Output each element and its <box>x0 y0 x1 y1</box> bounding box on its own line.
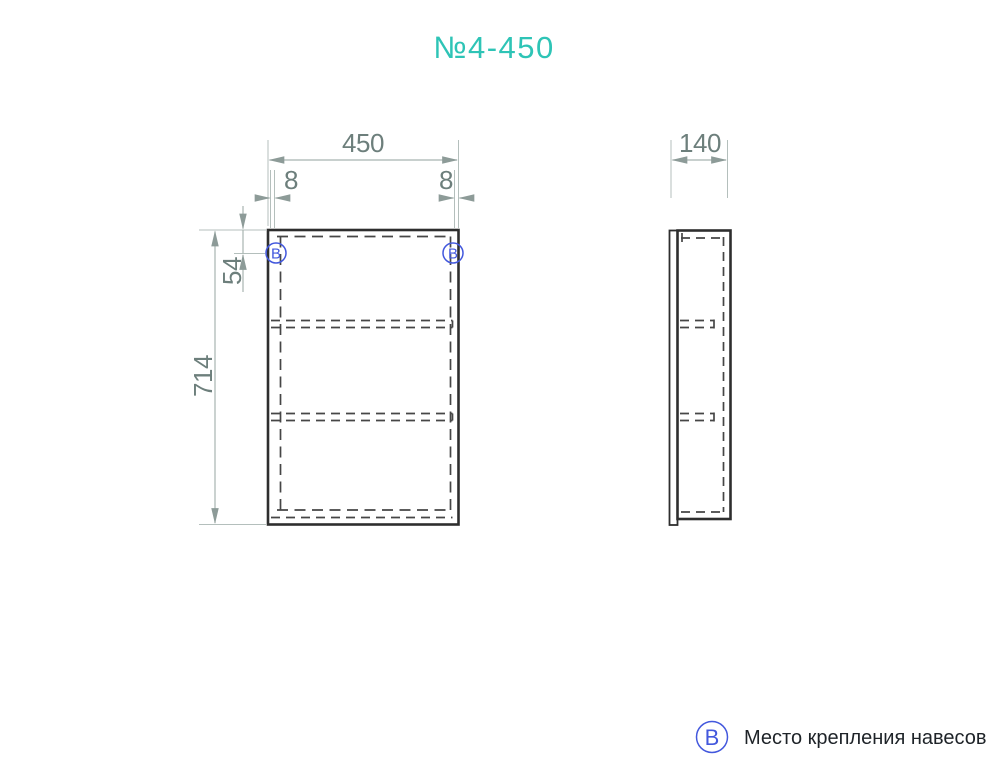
front-dimensions: 450 8 8 54 714 <box>188 128 472 525</box>
side-view <box>670 231 731 526</box>
drawing-title: №4-450 <box>433 30 555 65</box>
dim-right-offset-label: 8 <box>439 165 453 195</box>
drawing-canvas: №4-450 В <box>0 0 999 769</box>
cad-drawing: №4-450 В <box>0 0 999 769</box>
side-dimensions: 140 <box>671 128 728 198</box>
front-cabinet-outline <box>268 230 459 525</box>
front-view: В В <box>266 230 463 525</box>
dim-left-offset-label: 8 <box>284 165 298 195</box>
legend: В Место крепления навесов <box>697 722 987 753</box>
hinge-marker-right: В <box>443 243 463 263</box>
hinge-marker-left-label: В <box>271 246 281 263</box>
legend-label: Место крепления навесов <box>744 727 987 749</box>
dim-depth-label: 140 <box>679 128 721 158</box>
dim-width-label: 450 <box>342 128 384 158</box>
dim-hinge-top-offset-label: 54 <box>217 257 247 285</box>
hinge-marker-right-label: В <box>448 246 458 263</box>
side-cabinet-outline <box>678 231 731 520</box>
dim-height-label: 714 <box>188 355 218 397</box>
legend-marker-symbol: В <box>705 725 720 750</box>
